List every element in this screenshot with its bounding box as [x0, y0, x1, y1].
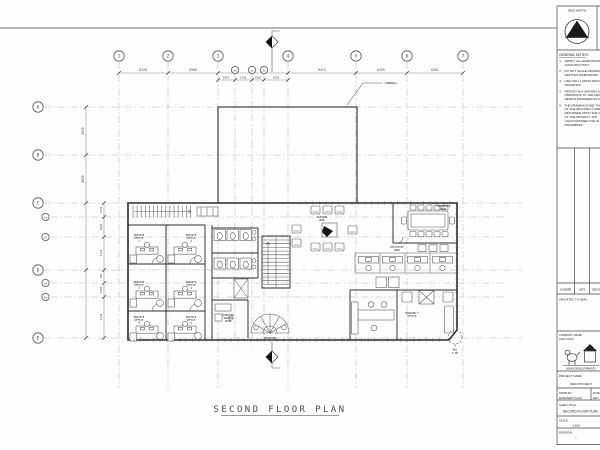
- room-label: RECEPTION: [264, 337, 277, 340]
- note-number: 2.: [559, 69, 562, 73]
- round-table: [195, 256, 202, 263]
- monitor: [179, 248, 183, 251]
- general-notes-title: GENERAL NOTES:: [559, 53, 589, 57]
- dimension-value: 6000: [81, 175, 85, 183]
- waiting-area-table: [322, 223, 337, 237]
- drawn-by-label: DRWN BY:: [559, 391, 572, 395]
- round-table: [157, 256, 164, 263]
- cabinet: [130, 299, 137, 307]
- sheet-title-label: SHEET TITLE:: [559, 403, 577, 407]
- section-marker-top: [266, 31, 280, 72]
- office-desk: [136, 326, 158, 333]
- note-line: DRAWINGS.: [565, 83, 582, 87]
- dimension-value: 6281: [431, 68, 439, 72]
- scale-label: SCALE:: [559, 419, 569, 423]
- cubicle-chair: [390, 265, 395, 270]
- room-label-line: AREA: [394, 248, 401, 252]
- dimension-value: 8128: [139, 68, 147, 72]
- cabinet: [130, 255, 137, 263]
- drawn-by-value: MARGARET KAUR: [559, 396, 582, 400]
- section-marker-bottom: [266, 342, 280, 368]
- round-table: [195, 300, 202, 307]
- dimension-value: 2158: [240, 76, 247, 80]
- server-rack: [215, 304, 231, 311]
- room-label: PRIVATEOFFICE5: [134, 315, 145, 325]
- note-line: DESIGN ENGINEER AS APPLICABLE.: [565, 97, 600, 101]
- round-table: [157, 300, 164, 307]
- grid-north-label: GRID NORTH: [568, 9, 586, 13]
- interior-walls: [128, 203, 457, 340]
- dimension-value: 706: [99, 273, 103, 278]
- monitor: [141, 327, 145, 330]
- room-label-line: AREA: [319, 218, 326, 222]
- note-number: 4.: [559, 89, 562, 93]
- cubicle-pc: [390, 258, 396, 262]
- reception-desk: [251, 314, 289, 333]
- dimension-value: 3095: [99, 223, 103, 230]
- office-chair: [144, 242, 149, 247]
- company-name: LEWIS DEVELOPMENTS: [566, 367, 596, 371]
- plan-title-text: SECOND FLOOR PLAN: [214, 405, 347, 415]
- revision-header: DATE: [579, 289, 586, 292]
- architects-seal-label: ARCHITECT'S SEAL: [559, 298, 588, 302]
- dimension-value: 6435: [377, 68, 385, 72]
- round-table: [195, 333, 202, 340]
- revision-value: --: [575, 437, 577, 441]
- revision-label: REVISION:: [559, 431, 573, 435]
- dimension-value: 5178: [99, 313, 103, 320]
- office-desk: [174, 247, 196, 254]
- note-number: 3.: [559, 79, 562, 83]
- waiting-chair: [323, 243, 332, 251]
- storage-box: [389, 277, 400, 288]
- company-label: AND LOGO: [559, 337, 575, 341]
- monitor: [150, 327, 154, 330]
- scale-value: 1:100: [572, 424, 580, 428]
- dimension-value: 1533: [99, 206, 103, 213]
- dimension-value: 1850: [255, 76, 262, 80]
- cubicle-pc: [440, 258, 446, 262]
- conference-chair: [418, 232, 424, 237]
- conference-table: [402, 211, 455, 230]
- waiting-chair: [323, 206, 332, 214]
- monitor: [141, 248, 145, 251]
- waiting-chair: [335, 206, 344, 214]
- sheet-title-value: SECOND FLOOR PLAN: [563, 410, 598, 414]
- conference-chair: [410, 232, 416, 237]
- waiting-chair: [335, 243, 344, 251]
- building-walls: [128, 107, 457, 340]
- conference-chair: [442, 232, 448, 237]
- waiting-chair: [292, 225, 301, 233]
- conference-chair: [426, 232, 432, 237]
- dimension-value: 1952: [223, 76, 230, 80]
- dimension-value: 8474: [318, 68, 326, 72]
- plan-title: SECOND FLOOR PLAN: [214, 405, 347, 416]
- revision-table: NUMBERDATEDESCRIPTION: [560, 289, 600, 292]
- conference-chair: [418, 205, 424, 210]
- washroom-fixtures: [214, 230, 256, 270]
- architectural-sheet: 8128858684746435628119522158185026086020…: [0, 0, 600, 450]
- room-label-line: ROOM: [225, 319, 232, 323]
- room-label-line: OFFICE: [407, 314, 417, 318]
- waiting-chair: [292, 239, 301, 247]
- room-label: PRIVATEOFFICE2: [186, 233, 197, 243]
- cubicle-pc: [366, 258, 372, 262]
- monitor: [188, 327, 192, 330]
- dimension-value: 3300: [99, 286, 103, 293]
- dimension-value: 8586: [189, 68, 197, 72]
- monitor: [188, 292, 192, 295]
- dimension-value: 6020: [81, 127, 85, 135]
- room-label: PRIVATEOFFICE1: [134, 233, 145, 243]
- note-number: 1.: [559, 59, 562, 63]
- note-line: PROHIBITED.: [565, 123, 584, 127]
- round-table: [157, 333, 164, 340]
- dimension-value: 2608: [273, 76, 280, 80]
- cabinet: [130, 333, 137, 341]
- revision-header: DESCRIPTION: [592, 289, 600, 292]
- north-arrow: GRID NORTH: [565, 9, 600, 44]
- room-label: WAITINGAREA: [317, 215, 328, 222]
- monitor: [179, 292, 183, 295]
- cabinet: [168, 255, 175, 263]
- photocopiers: [418, 245, 448, 252]
- cubicle-chair: [366, 265, 371, 270]
- cubicle-chair: [415, 265, 420, 270]
- storage-box: [376, 277, 387, 288]
- cabinet: [168, 333, 175, 341]
- room-label: MANAGER'SOFFICE: [405, 311, 419, 318]
- note-line: WRITTEN DIMENSIONS.: [565, 73, 599, 77]
- date-value: DEC: [593, 396, 599, 400]
- project-name-label: PROJECT NAME:: [559, 374, 583, 378]
- date-label: DATE:: [593, 391, 600, 395]
- dimension-value: 4118: [99, 249, 103, 256]
- server-rack: [215, 314, 222, 321]
- project-name-value: MAIN PROJECT: [570, 382, 593, 386]
- conference-chair: [410, 205, 416, 210]
- monitor: [141, 292, 145, 295]
- office-chair: [182, 242, 187, 247]
- office-desk: [136, 247, 158, 254]
- room-label-line: ROOM: [440, 207, 447, 211]
- note-number: 5.: [559, 103, 562, 107]
- awning-leader: [347, 83, 383, 105]
- waiting-chair: [348, 226, 357, 234]
- cabinet: [168, 299, 175, 307]
- conference-chair: [426, 205, 432, 210]
- revision-header: NUMBER: [560, 289, 571, 292]
- awning-note: (AWNING): [384, 81, 398, 85]
- monitor: [150, 248, 154, 251]
- monitor: [150, 292, 154, 295]
- waiting-chair: [311, 243, 320, 251]
- stair-arrow: [266, 242, 269, 284]
- monitor: [179, 327, 183, 330]
- monitor: [188, 248, 192, 251]
- office-desk: [174, 291, 196, 298]
- room-label-line: RECEPTION: [264, 337, 277, 340]
- general-notes: 1.VERIFY ALL DIMENSIONS PRIOR TOCONSTRUC…: [559, 59, 600, 127]
- office-chair: [144, 286, 149, 291]
- cubicle-chair: [440, 265, 445, 270]
- conference-chair: [434, 232, 440, 237]
- room-label: PRIVATEOFFICE3: [134, 280, 145, 290]
- room-label: PHOTOCOPYAREA: [390, 245, 404, 252]
- detail-note: 0.5M: [452, 352, 458, 355]
- office-desk: [174, 326, 196, 333]
- office-chair: [144, 321, 149, 326]
- cubicle-pc: [415, 258, 421, 262]
- company-logo: [563, 344, 599, 366]
- note-line: CONSTRUCTION.: [565, 63, 590, 67]
- exterior-wall: [128, 203, 457, 340]
- room-labels: PRIVATEOFFICE1PRIVATEOFFICE2PRIVATEOFFIC…: [134, 204, 451, 340]
- waiting-chair: [311, 206, 320, 214]
- stair-landing: [197, 207, 218, 216]
- office-desk: [136, 291, 158, 298]
